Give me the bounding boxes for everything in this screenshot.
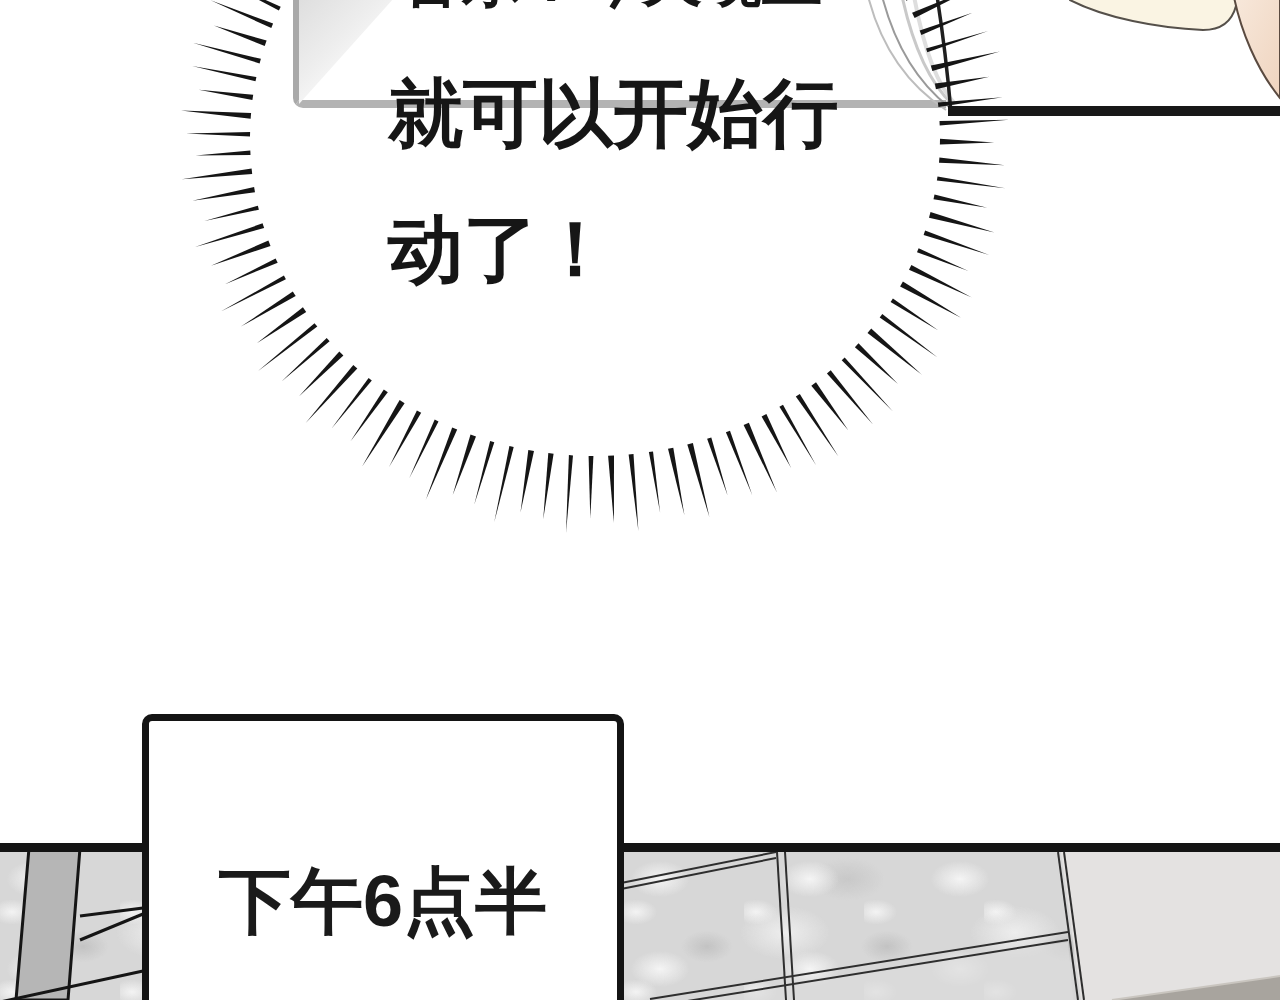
burst-dash — [182, 168, 253, 179]
burst-dash — [939, 158, 1005, 166]
bubble-text-line-1: 音乐？今天晚上 — [402, 0, 822, 10]
burst-dash — [796, 394, 839, 457]
burst-dash — [924, 231, 990, 255]
time-caption-text: 下午6点半 — [142, 864, 624, 940]
burst-dash — [196, 151, 251, 156]
burst-dash — [900, 282, 961, 318]
burst-dash — [192, 187, 255, 201]
burst-dash — [299, 352, 343, 397]
burst-dash — [608, 456, 614, 524]
burst-dash — [811, 382, 848, 430]
burst-dash — [938, 97, 1003, 107]
burst-dash — [521, 450, 535, 512]
burst-dash — [195, 223, 264, 247]
burst-dash — [494, 446, 513, 522]
burst-dash — [186, 132, 250, 136]
burst-dash — [649, 452, 660, 513]
burst-dash — [909, 265, 972, 298]
burst-dash — [762, 414, 792, 468]
burst-dash — [350, 390, 387, 442]
burst-dash — [929, 212, 995, 233]
burst-dash — [937, 177, 1005, 189]
burst-dash — [389, 410, 421, 467]
bubble-text-line-3: 动了！ — [388, 212, 613, 287]
burst-dash — [331, 378, 371, 429]
burst-dash — [211, 0, 274, 28]
wall-right-smooth — [1058, 852, 1280, 1000]
burst-dash — [258, 323, 317, 371]
comic-page: 音乐？今天晚上 就可以开始行 动了！ — [0, 0, 1280, 1000]
burst-dash — [668, 448, 684, 515]
burst-dash — [204, 206, 259, 221]
burst-dash — [566, 455, 573, 533]
burst-dash — [193, 43, 261, 64]
bubble-text-line-2: 就可以开始行 — [388, 76, 838, 151]
burst-dash — [868, 329, 922, 375]
panel-edge-line — [948, 106, 1280, 116]
burst-dash — [744, 423, 777, 493]
skin-shape — [1233, 0, 1280, 98]
burst-dash — [687, 443, 709, 518]
burst-dash — [257, 307, 306, 343]
burst-dash — [855, 343, 898, 384]
burst-dash — [827, 370, 873, 424]
burst-dash — [214, 26, 267, 47]
burst-dash — [306, 365, 358, 423]
burst-dash — [880, 314, 938, 358]
burst-dash — [221, 276, 286, 312]
burst-dash — [707, 437, 728, 495]
burst-dash — [199, 90, 254, 100]
burst-dash — [217, 0, 281, 11]
burst-dash — [192, 66, 256, 81]
burst-dash — [629, 454, 639, 531]
burst-dash — [917, 248, 968, 271]
burst-dash — [409, 420, 438, 478]
burst-dash — [362, 400, 405, 466]
burst-dash — [940, 120, 1010, 126]
burst-dash — [181, 111, 251, 119]
burst-dash — [241, 292, 296, 327]
burst-dash — [453, 435, 476, 496]
burst-dash — [934, 194, 988, 207]
burst-dash — [543, 453, 553, 519]
burst-dash — [282, 338, 330, 382]
burst-dash — [842, 358, 893, 412]
burst-dash — [589, 456, 594, 518]
burst-dash — [891, 298, 939, 330]
burst-dash — [211, 241, 271, 266]
burst-dash — [726, 431, 753, 496]
cream-object-shape — [1070, 0, 1238, 30]
burst-dash — [940, 139, 994, 145]
burst-dash — [474, 441, 494, 504]
burst-dash — [426, 428, 458, 500]
wall-mid-texture — [624, 852, 1074, 1000]
time-caption-box — [142, 714, 624, 1000]
burst-dash — [779, 405, 816, 465]
burst-dash — [225, 258, 278, 284]
